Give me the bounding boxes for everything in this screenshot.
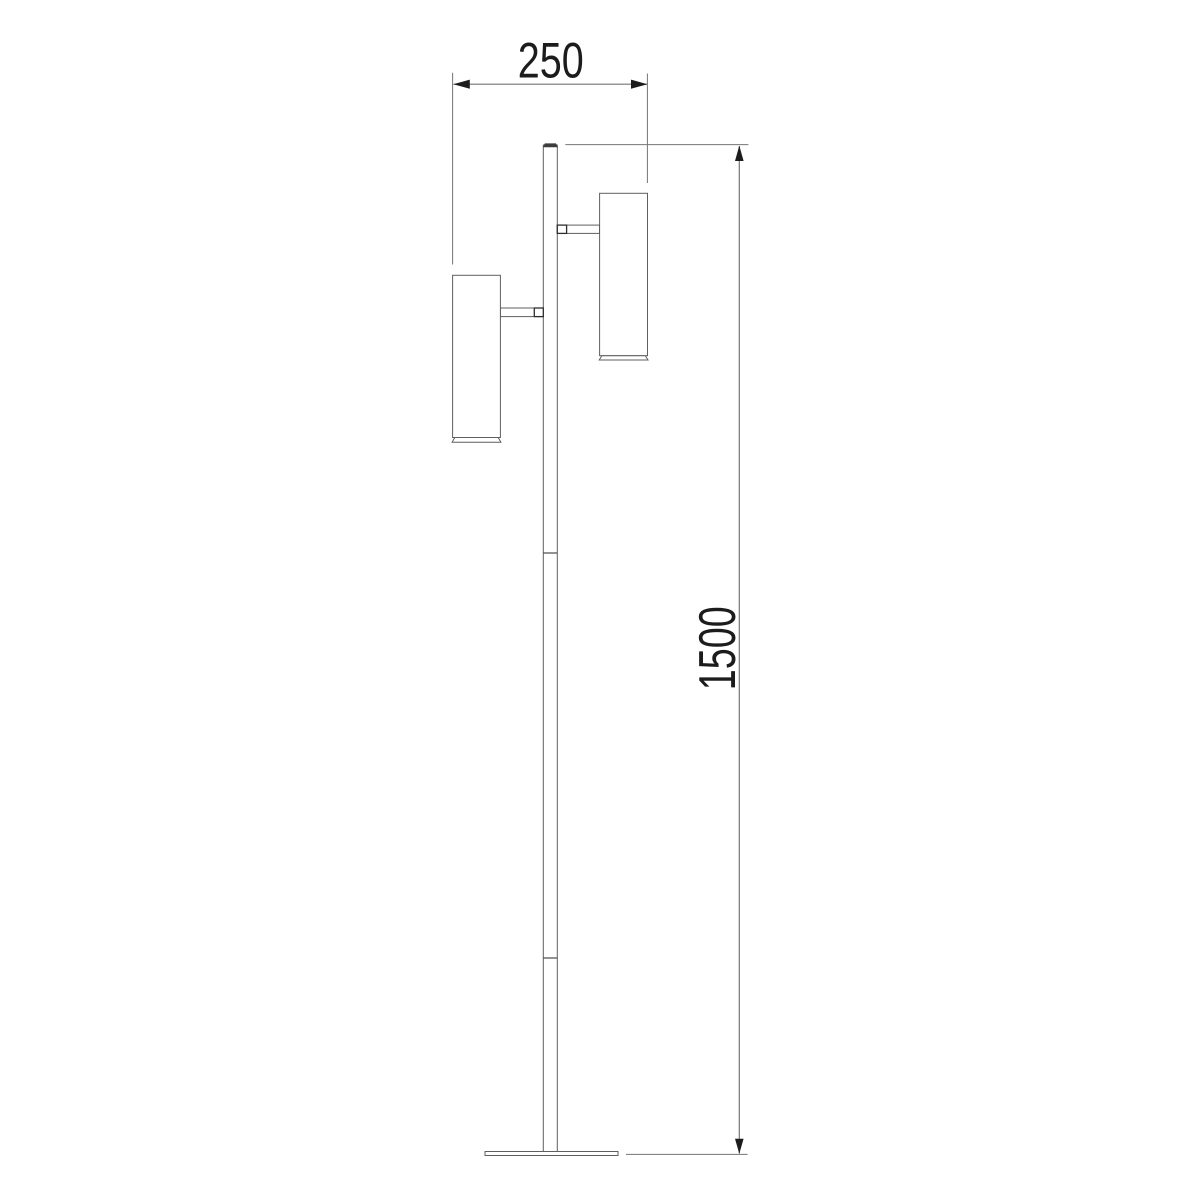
svg-text:250: 250: [518, 32, 584, 89]
svg-text:1500: 1500: [689, 606, 747, 690]
